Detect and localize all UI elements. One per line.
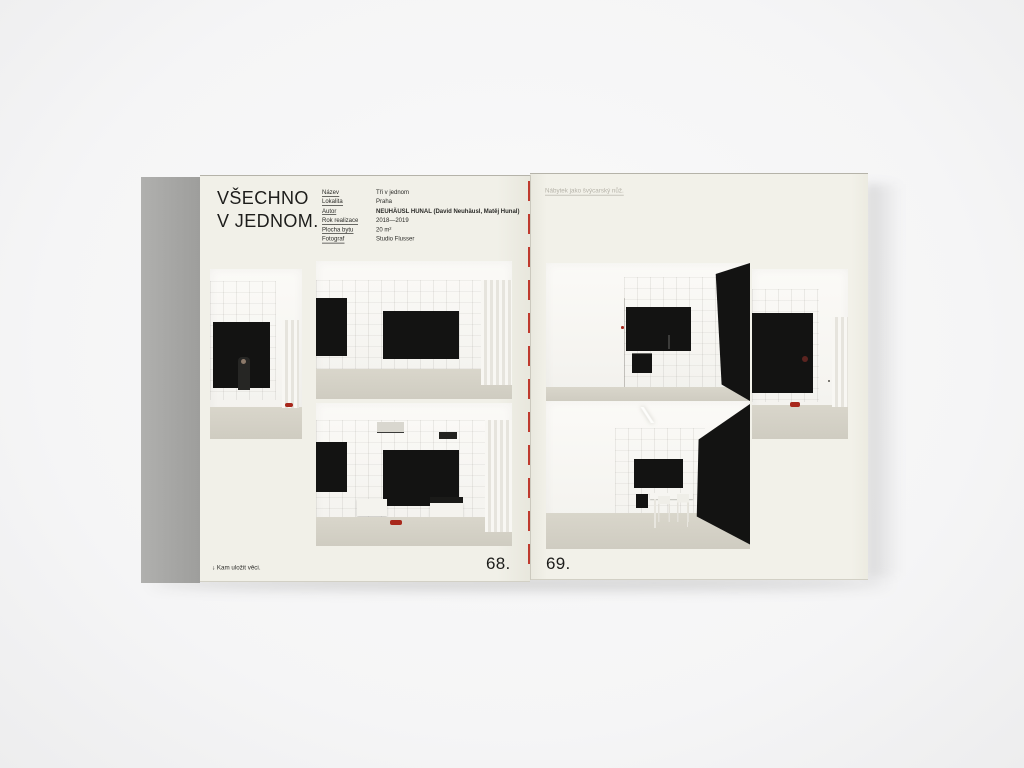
page-number-left: 68. — [486, 554, 511, 574]
floor — [316, 517, 512, 546]
red-detail-dot — [621, 326, 624, 329]
photo-niche-small — [752, 269, 848, 439]
left-page: VŠECHNO V JEDNOM. Název Tři v jednom Lok… — [200, 175, 530, 582]
floor — [210, 407, 302, 439]
curtain — [282, 320, 299, 408]
figure-in-niche — [802, 356, 808, 362]
wall-corner-line — [624, 298, 625, 389]
book-side-shadow — [866, 184, 902, 576]
red-stitching — [528, 181, 530, 573]
tv-niche-center — [383, 311, 459, 359]
meta-row-rok: Rok realizace 2018—2019 — [322, 216, 532, 225]
book-gutter — [530, 175, 531, 580]
meta-value: Studio Flusser — [376, 235, 532, 244]
page-number-right: 69. — [546, 554, 571, 574]
project-meta: Název Tři v jednom Lokalita Praha Autor … — [322, 188, 532, 244]
built-in-oven — [632, 353, 652, 374]
meta-value: Tři v jednom — [376, 188, 532, 197]
meta-label: Lokalita — [322, 198, 343, 206]
meta-value: NEUHÄUSL HUNAL (David Neuhäusl, Matěj Hu… — [376, 207, 532, 216]
black-niche — [752, 313, 813, 393]
kitchen-hood-niche — [626, 307, 691, 351]
faucet — [668, 335, 670, 349]
built-in-oven — [636, 494, 648, 507]
curtain — [832, 317, 848, 407]
floor — [752, 405, 848, 439]
meta-row-lokalita: Lokalita Praha — [322, 197, 532, 206]
white-bench-right — [430, 503, 463, 517]
meta-row-fotograf: Fotograf Studio Flusser — [322, 235, 532, 244]
table-leg — [654, 499, 656, 529]
photo-living-room — [316, 261, 512, 399]
curtain — [481, 280, 512, 385]
meta-label: Název — [322, 189, 339, 197]
kitchen-niche-left — [316, 298, 347, 356]
section-header-note: Nábytek jako švýcarský nůž. — [545, 187, 624, 194]
meta-value: 20 m² — [376, 225, 532, 234]
title-line-1: VŠECHNO — [217, 187, 319, 210]
curtain — [485, 420, 512, 532]
photo-kitchen — [546, 263, 750, 401]
ceiling-flap — [377, 422, 404, 433]
wall-socket — [828, 380, 831, 383]
ceiling-shelf — [439, 432, 457, 439]
kitchen-hood-niche — [634, 459, 683, 489]
page-title: VŠECHNO V JEDNOM. — [217, 187, 319, 233]
meta-row-autor: Autor NEUHÄUSL HUNAL (David Neuhäusl, Ma… — [322, 207, 532, 216]
photo-dining — [546, 401, 750, 549]
kitchen-niche-left — [316, 442, 347, 492]
ceiling-linear-light — [636, 407, 658, 423]
red-slippers — [790, 402, 800, 407]
chair — [658, 496, 670, 523]
meta-row-nazev: Název Tři v jednom — [322, 188, 532, 197]
meta-label: Rok realizace — [322, 217, 358, 225]
book-spread-photo: VŠECHNO V JEDNOM. Název Tři v jednom Lok… — [0, 0, 1024, 768]
chapter-footnote: ↓ Kam uložit věci. — [212, 564, 261, 571]
photo-open-furniture — [316, 403, 512, 546]
meta-label: Fotograf — [322, 235, 344, 243]
red-slippers — [390, 520, 402, 525]
white-bench-left — [357, 499, 386, 516]
meta-value: Praha — [376, 197, 532, 206]
meta-label: Autor — [322, 207, 336, 215]
chair — [677, 494, 689, 522]
meta-label: Plocha bytu — [322, 226, 353, 234]
book-cover-edge — [141, 177, 200, 583]
meta-row-plocha: Plocha bytu 20 m² — [322, 225, 532, 234]
right-page: Nábytek jako švýcarský nůž. — [530, 173, 868, 580]
title-line-2: V JEDNOM. — [217, 210, 319, 233]
photo-niche-with-person — [210, 269, 302, 439]
floor — [546, 387, 750, 401]
meta-value: 2018—2019 — [376, 216, 532, 225]
